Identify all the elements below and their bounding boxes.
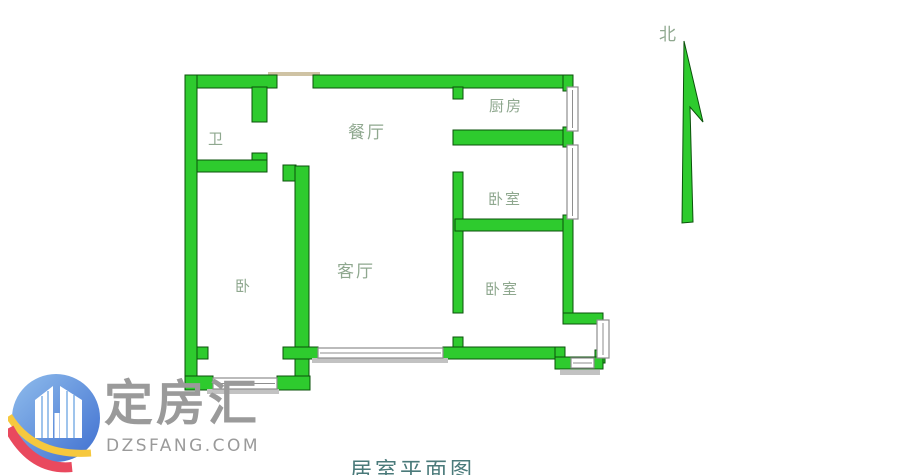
north-label: 北 [659, 27, 676, 44]
watermark: 定房汇 DZSFANG.COM [8, 367, 308, 475]
room-label-dining: 餐厅 [348, 125, 386, 142]
north-arrow-icon [682, 41, 703, 223]
room-label-living: 客厅 [337, 264, 375, 281]
room-label-bedroom-left: 卧 [235, 279, 252, 294]
watermark-site-text: DZSFANG.COM [106, 438, 260, 455]
floor-plan-page: 卫 餐厅 厨房 卧室 卧 客厅 卧室 北 定房 [0, 0, 900, 475]
room-label-bedroom-middle: 卧室 [488, 192, 522, 207]
room-label-bathroom: 卫 [208, 132, 225, 147]
dzsfang-logo-icon [8, 369, 108, 475]
walls [185, 75, 605, 390]
watermark-brand-text: 定房汇 [104, 379, 260, 428]
room-label-bedroom-bottom: 卧室 [485, 282, 519, 297]
caption-text: 居室平面图 [350, 459, 475, 475]
room-label-kitchen: 厨房 [489, 99, 523, 114]
